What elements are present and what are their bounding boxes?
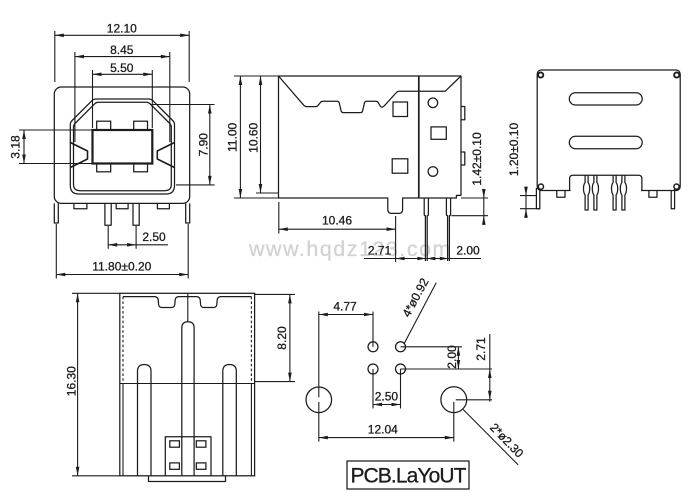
svg-text:11.00: 11.00 xyxy=(226,123,240,152)
svg-text:10.60: 10.60 xyxy=(247,122,261,152)
svg-text:12.04: 12.04 xyxy=(368,422,398,436)
svg-text:www.hqdz123.com: www.hqdz123.com xyxy=(248,237,452,261)
svg-text:2.71: 2.71 xyxy=(368,244,392,258)
svg-text:5.50: 5.50 xyxy=(110,61,134,75)
svg-text:1.42±0.10: 1.42±0.10 xyxy=(470,132,484,186)
svg-text:2.50: 2.50 xyxy=(375,389,399,403)
svg-text:7.90: 7.90 xyxy=(197,133,211,157)
svg-text:12.10: 12.10 xyxy=(107,22,137,36)
svg-text:16.30: 16.30 xyxy=(65,366,79,396)
svg-text:2.00: 2.00 xyxy=(456,244,480,258)
svg-text:4.77: 4.77 xyxy=(333,300,357,314)
svg-text:1.20±0.10: 1.20±0.10 xyxy=(507,123,521,177)
svg-text:2.71: 2.71 xyxy=(474,337,488,361)
svg-text:PCB.LaYoUT: PCB.LaYoUT xyxy=(350,465,466,488)
svg-text:3.18: 3.18 xyxy=(9,135,23,159)
svg-text:8.20: 8.20 xyxy=(275,326,289,350)
svg-text:10.46: 10.46 xyxy=(322,214,352,228)
svg-text:8.45: 8.45 xyxy=(110,43,134,57)
svg-text:2.00: 2.00 xyxy=(445,345,459,369)
svg-text:11.80±0.20: 11.80±0.20 xyxy=(92,259,151,273)
svg-text:2.50: 2.50 xyxy=(142,230,166,244)
